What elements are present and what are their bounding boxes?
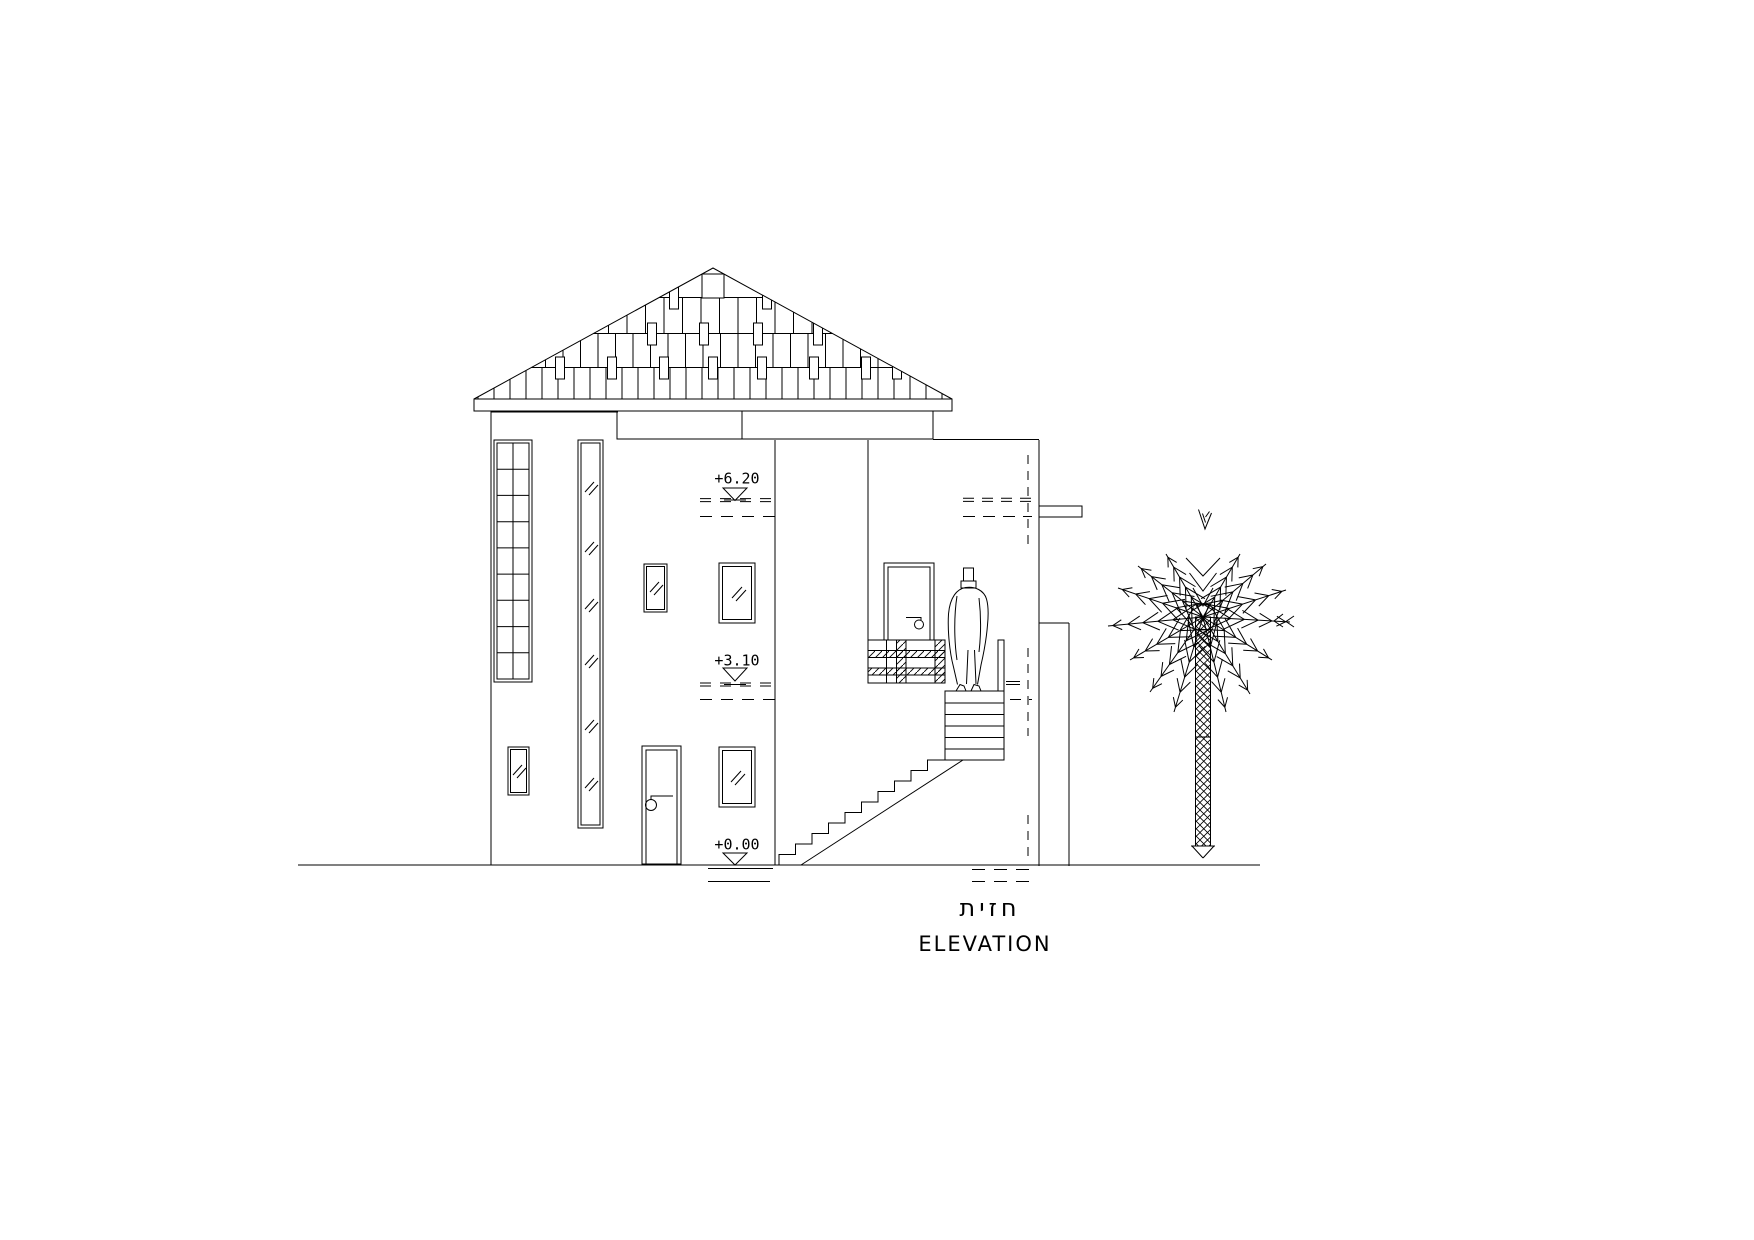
landing-railing-hatched: [868, 640, 945, 683]
roof-fascia: [474, 399, 952, 411]
entry-door: [642, 746, 681, 864]
glass-mark: [732, 587, 746, 601]
upper-flight-block: [945, 691, 1004, 760]
window-upper-right: [719, 563, 755, 623]
caption-english: ELEVATION: [918, 932, 1051, 956]
elevation-drawing-sheet: +6.20 +3.10 +0.00: [0, 0, 1754, 1240]
caption-hebrew: חזית: [959, 894, 1020, 922]
level-triangle: [723, 853, 747, 865]
glass-mark: [731, 771, 745, 785]
person-figure: [948, 568, 988, 691]
bird-mark: [1199, 510, 1212, 530]
grid-window: [494, 440, 532, 682]
right-wing-wall: [1039, 623, 1069, 866]
hip-roof: [474, 268, 952, 411]
canopy-slab: [1039, 506, 1082, 517]
roof-tile-pattern: [474, 274, 952, 399]
door-knob: [646, 796, 674, 811]
level-label: +6.20: [714, 470, 759, 488]
palm-tree: [1108, 510, 1294, 859]
level-marker-310: +3.10: [700, 652, 775, 700]
lower-flight-steps: [779, 760, 945, 865]
level-marker-000: +0.00: [708, 836, 773, 882]
level-label: +0.00: [714, 836, 759, 854]
stair-stringer: [801, 760, 963, 865]
strip-window: [578, 440, 603, 828]
door-knob: [906, 618, 924, 630]
glass-marks: [585, 482, 598, 791]
glass-mark: [513, 765, 526, 778]
window-lower-right: [719, 747, 755, 807]
level-marker-620: +6.20: [700, 470, 775, 517]
level-label: +3.10: [714, 652, 759, 670]
level-triangle: [723, 668, 747, 681]
railing-post: [998, 640, 1004, 691]
trunk-base: [1191, 846, 1215, 858]
glass-mark: [650, 582, 663, 595]
upper-parapet-band: [617, 411, 1039, 440]
window-upper-small: [644, 564, 667, 612]
window-lower-small: [508, 747, 529, 795]
foundation-dashed-lines: [972, 870, 1032, 882]
